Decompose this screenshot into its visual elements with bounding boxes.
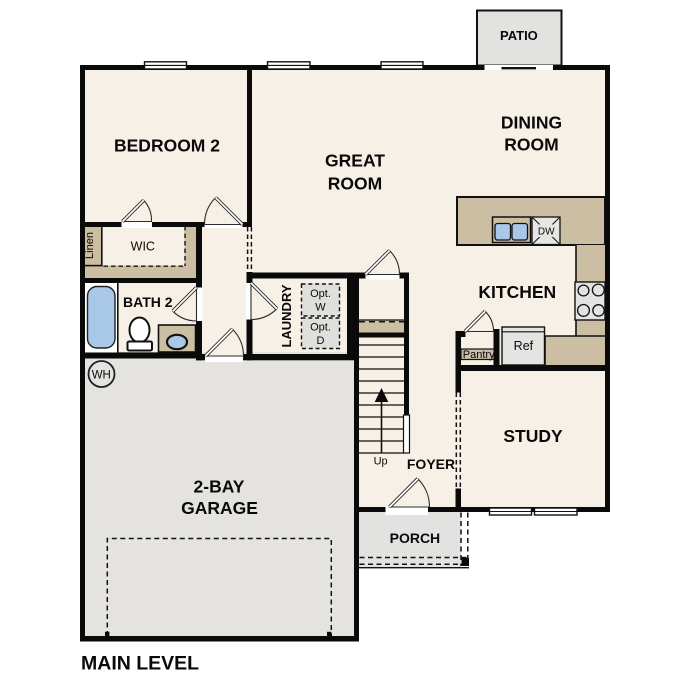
svg-text:PATIO: PATIO <box>500 28 538 43</box>
svg-text:LAUNDRY: LAUNDRY <box>279 284 294 347</box>
svg-text:WIC: WIC <box>131 240 155 254</box>
svg-text:PORCH: PORCH <box>390 530 441 546</box>
svg-text:DINING: DINING <box>501 113 562 133</box>
svg-text:GREAT: GREAT <box>325 151 385 171</box>
svg-text:MAIN LEVEL: MAIN LEVEL <box>81 653 199 675</box>
svg-text:Up: Up <box>374 456 388 468</box>
svg-text:ROOM: ROOM <box>504 135 558 155</box>
svg-text:Opt.: Opt. <box>310 288 331 300</box>
svg-text:WH: WH <box>92 369 111 381</box>
svg-text:DW: DW <box>538 227 555 238</box>
svg-text:Opt.: Opt. <box>310 322 331 334</box>
svg-text:Ref: Ref <box>514 339 534 353</box>
svg-text:Linen: Linen <box>84 232 96 259</box>
svg-text:STUDY: STUDY <box>503 426 563 446</box>
svg-text:Pantry: Pantry <box>463 349 495 361</box>
svg-text:D: D <box>317 335 325 347</box>
svg-text:BATH 2: BATH 2 <box>123 294 173 310</box>
svg-text:ROOM: ROOM <box>328 174 382 194</box>
svg-text:W: W <box>315 302 326 314</box>
svg-text:2-BAY: 2-BAY <box>194 477 245 497</box>
svg-text:BEDROOM 2: BEDROOM 2 <box>114 136 220 156</box>
svg-text:FOYER: FOYER <box>407 456 455 472</box>
svg-text:KITCHEN: KITCHEN <box>478 282 556 302</box>
svg-text:GARAGE: GARAGE <box>181 498 258 518</box>
